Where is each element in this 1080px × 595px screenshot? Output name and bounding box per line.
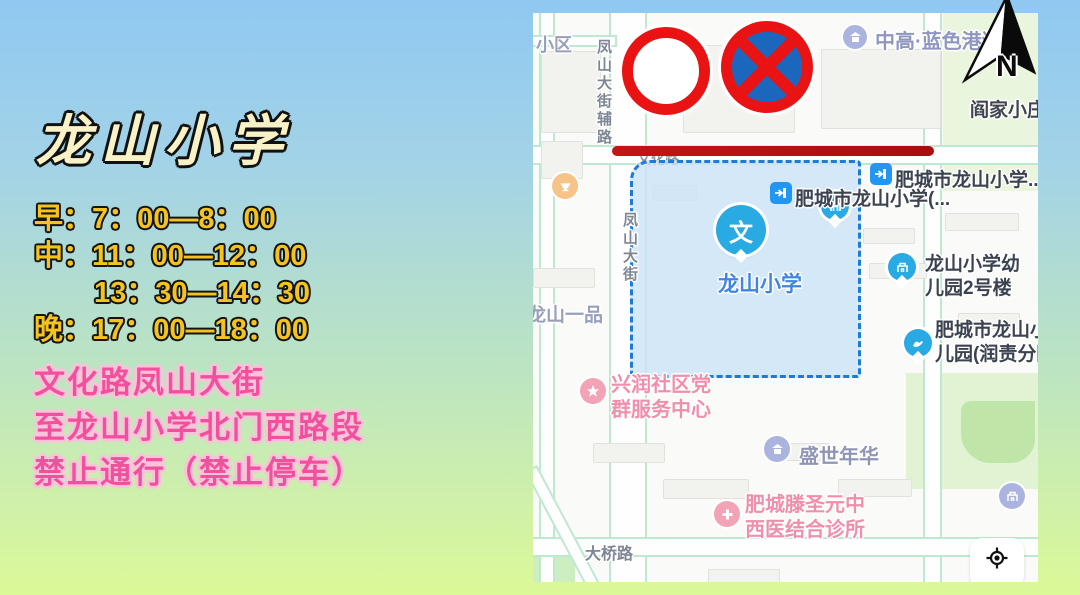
building-outline	[945, 213, 1019, 231]
building-glyph-icon	[771, 443, 784, 456]
notice-line-3: 禁止通行（禁止停车）	[34, 450, 364, 495]
map-label-kindergarten2-line2: 儿园2号楼	[925, 277, 1020, 301]
map-label-runze-line2: 儿园(润责分园	[935, 343, 1038, 367]
building-glyph-icon	[849, 31, 862, 44]
poster: 龙山小学 早：7：00—8：00 中：11：00—12：00 13：30—14：…	[0, 0, 1080, 595]
map-label-shengshi: 盛世年华	[799, 440, 879, 469]
road-label-daqiao: 大桥路	[585, 540, 633, 564]
building-outline	[663, 479, 749, 499]
page-title: 龙山小学	[36, 96, 292, 176]
locate-button[interactable]	[970, 538, 1024, 582]
north-label: N	[996, 50, 1018, 84]
residence-icon	[999, 483, 1025, 509]
map-label-yanjia: 阎家小庄	[970, 95, 1038, 122]
map-label-runze: 肥城市龙山小 儿园(润责分园	[935, 319, 1038, 367]
notice-line-2: 至龙山小学北门西路段	[34, 405, 364, 450]
no-vehicles-sign	[622, 27, 710, 115]
restriction-notice: 文化路凤山大街 至龙山小学北门西路段 禁止通行（禁止停车）	[34, 360, 364, 495]
building-outline	[593, 443, 665, 463]
map-label-clinic-line2: 西医结合诊所	[745, 518, 865, 543]
building-glyph-icon	[1006, 490, 1019, 503]
building-glyph-icon	[896, 261, 909, 274]
building-outline	[533, 268, 595, 288]
map-label-runze-line1: 肥城市龙山小	[935, 319, 1038, 343]
schedule-line-afternoon: 13：30—14：30	[94, 275, 310, 312]
building-outline	[821, 49, 941, 129]
map-label-clinic: 肥城滕圣元中 西医结合诊所	[745, 493, 865, 543]
no-stopping-sign	[721, 21, 813, 113]
locate-crosshair-icon	[985, 546, 1009, 570]
map-label-kindergarten2-line1: 龙山小学幼	[925, 253, 1020, 277]
map-label-yipin: 龙山一品	[533, 300, 603, 327]
school-pin-glyph: 文	[729, 213, 753, 248]
gate-glyph-icon	[874, 167, 888, 181]
schedule-line-evening: 晚：17：00—18：00	[34, 312, 310, 349]
cross-glyph-icon	[721, 508, 734, 521]
clinic-cross-icon	[714, 501, 740, 527]
building-outline	[863, 228, 915, 244]
map-label-kindergarten2: 龙山小学幼 儿园2号楼	[925, 253, 1020, 301]
restricted-road-line	[612, 146, 934, 156]
bird-glyph-icon	[911, 337, 925, 349]
star-glyph-icon	[586, 384, 600, 398]
map-label-xingrun-line2: 群服务中心	[611, 398, 711, 423]
road-label-fengshan-fulu: 凤山大街辅路	[593, 39, 614, 147]
map-label-xiaoqu: 小区	[536, 31, 572, 57]
schedule-line-noon: 中：11：00—12：00	[34, 238, 310, 275]
schedule-line-morning: 早：7：00—8：00	[34, 201, 310, 238]
community-star-icon	[580, 378, 606, 404]
runze-pin	[904, 329, 932, 357]
road-label-fengshan: 凤山大街	[619, 212, 640, 284]
gate-icon	[870, 163, 892, 185]
restaurant-icon	[552, 173, 578, 199]
map-label-school-entrance-2: 肥城市龙山小学(...	[795, 184, 950, 211]
park-area	[961, 401, 1035, 463]
map-label-xingrun-line1: 兴润社区党	[611, 373, 711, 398]
kindergarten2-pin	[888, 253, 916, 281]
school-pin: 文	[716, 205, 766, 255]
building-outline	[708, 569, 780, 582]
residence-icon	[764, 436, 790, 462]
schedule-block: 早：7：00—8：00 中：11：00—12：00 13：30—14：30 晚：…	[34, 201, 310, 349]
map-label-clinic-line1: 肥城滕圣元中	[745, 493, 865, 518]
gate-glyph-icon	[774, 186, 788, 200]
gate-icon	[770, 182, 792, 204]
building-outline	[541, 51, 601, 133]
notice-line-1: 文化路凤山大街	[34, 360, 364, 405]
map-label-school: 龙山小学	[705, 268, 815, 298]
bowl-glyph-icon	[559, 180, 572, 193]
map-label-xingrun: 兴润社区党 群服务中心	[611, 373, 711, 423]
residence-icon	[843, 25, 867, 49]
